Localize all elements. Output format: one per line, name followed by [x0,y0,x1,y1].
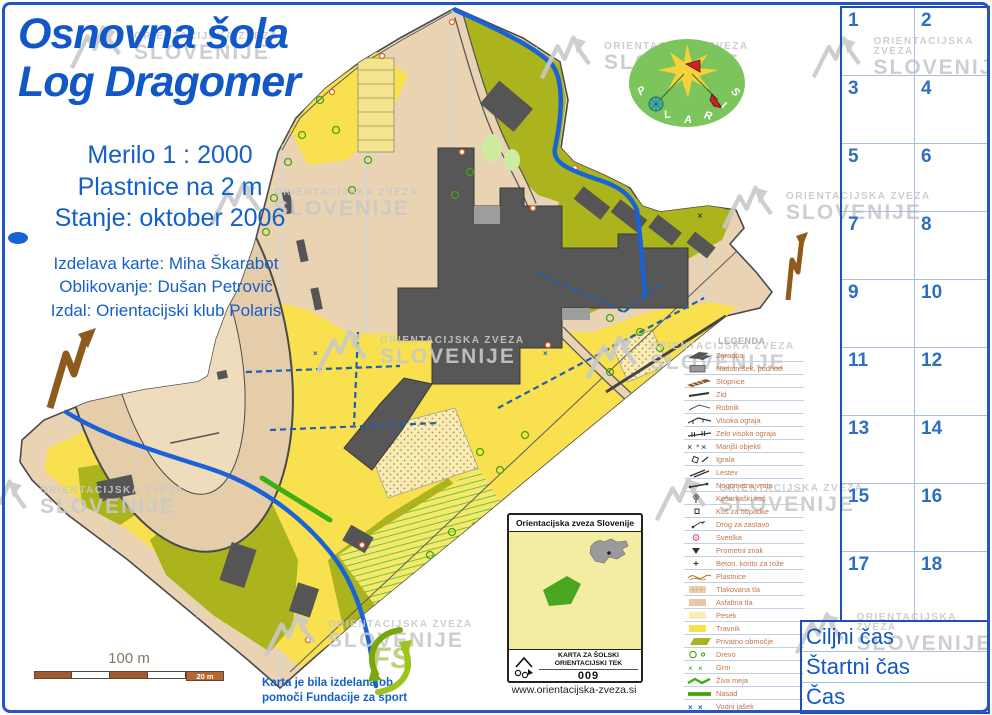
credit-publisher: Izdal: Orientacijski klub Polaris [6,299,326,322]
card-type-line1: KARTA ZA ŠOLSKI [558,652,619,659]
legend-item: Travnik [684,622,804,635]
map-title-line2: Log Dragomer [18,58,300,106]
sports-foundation-logo: FS [354,616,418,706]
hedge-symbol-icon [684,675,716,686]
control-card-cell: 10 [915,280,988,348]
legend-item-label: Zid [716,390,726,399]
legend-item-label: Živa meja [716,676,748,685]
stairs-symbol-icon [684,376,716,387]
control-card-cell: 15 [842,484,915,552]
svg-text:×: × [696,444,700,450]
legend-item-label: Lestev [716,468,738,477]
flagpole-symbol-icon [684,519,716,530]
very-high-fence-symbol-icon [684,428,716,439]
private-symbol-icon [684,636,716,647]
building-symbol-icon [684,350,716,361]
legend-item: Drog za zastavo [684,518,804,531]
contour-interval: Plastnice na 2 m [12,172,328,204]
legend-item-label: Zgradba [716,351,744,360]
legend-item-label: Robnik [716,403,739,412]
legend-item: Lestev [684,466,804,479]
curb-symbol-icon [684,402,716,413]
control-card-cell: 17 [842,552,915,620]
legend-item-label: Nogometna vrata [716,481,773,490]
legend-item: Drevo [684,648,804,661]
legend-item: Zelo visoka ograja [684,427,804,440]
legend-item-label: Drog za zastavo [716,520,769,529]
playground-symbol-icon [684,454,716,465]
control-card-cell: 6 [915,144,988,212]
legend-item: Asfaltna tla [684,596,804,609]
legend-item: Pesek [684,609,804,622]
website-url: www.orientacijska-zveza.si [500,684,648,696]
scale-bar: 100 m 20 m [34,650,224,681]
federation-card: Orientacijska zveza Slovenije KARTA ZA Š… [507,513,643,683]
card-type-line2: ORIENTACIJSKI TEK [555,660,622,667]
control-card-cell: 3 [842,76,915,144]
svg-text:×: × [313,349,318,358]
svg-text:×: × [688,664,693,673]
legend-header: LEGENDA [684,336,804,349]
legend-item-label: Košarkaški koš [716,494,766,503]
plantation-symbol-icon [684,688,716,699]
paved-symbol-icon [684,584,716,595]
legend-item-label: Grm [716,663,730,672]
legend-item: ××Vodni jašek [684,700,804,713]
legend-item: Nadstrešek, podhod [684,362,804,375]
legend-item-label: Stopnice [716,377,745,386]
scale-bar-label: 100 m [34,650,224,667]
map-number: 009 [539,670,638,682]
svg-text:×: × [688,703,693,712]
legend-item-label: Nasad [716,689,737,698]
legend-item: Zid [684,388,804,401]
control-card-cell: 14 [915,416,988,484]
high-fence-symbol-icon [684,415,716,426]
svg-text:×: × [698,664,703,673]
time-record-box: Ciljni časŠtartni časČas [800,620,990,714]
credit-cartography: Izdelava karte: Miha Škarabot [6,252,326,275]
legend-item: Igrala [684,453,804,466]
legend-item: Nasad [684,687,804,700]
legend-item: Koš za odpadke [684,505,804,518]
bin-symbol-icon [684,506,716,517]
credit-design: Oblikovanje: Dušan Petrovič [6,275,326,298]
legend-item: Zgradba [684,349,804,362]
control-card-cell: 16 [915,484,988,552]
scale-segment-label: 20 m [186,671,224,681]
legend-item: Plastnice [684,570,804,583]
legend-item-label: Tlakovana tla [716,585,760,594]
contours-symbol-icon [684,571,716,582]
north-arrow-icon [40,320,100,412]
control-card-grid: 123456789101112131415161718 [840,6,990,622]
legend-item-label: Asfaltna tla [716,598,753,607]
sand-symbol-icon [684,610,716,621]
legend-item-label: Plastnice [716,572,746,581]
svg-text:×: × [701,442,706,452]
map-location-patch [543,576,581,606]
svg-text:×: × [697,211,703,222]
legend-item: Prometni znak [684,544,804,557]
planter-symbol-icon [684,558,716,569]
canopy-symbol-icon [684,363,716,374]
legend-item: Visoka ograja [684,414,804,427]
legend-item-label: Manjši objekti [716,442,761,451]
control-card-cell: 13 [842,416,915,484]
federation-name: Orientacijska zveza Slovenije [509,515,641,532]
lamp-symbol-icon [684,532,716,543]
wall-symbol-icon [684,389,716,400]
legend-item: Nogometna vrata [684,479,804,492]
bush-symbol-icon: ×× [684,662,716,673]
legend-item-label: Nadstrešek, podhod [716,364,782,373]
legend-item-label: Visoka ograja [716,416,761,425]
control-card-cell: 2 [915,8,988,76]
svg-text:×: × [698,703,703,712]
map-scale: Merilo 1 : 2000 [12,140,328,172]
legend-item-label: Prometni znak [716,546,763,555]
legend-item-label: Privatno območje [716,637,773,646]
legend-item-label: Travnik [716,624,740,633]
legend-item-label: Koš za odpadke [716,507,769,516]
polaris-club-logo: P L A R I S [626,36,748,130]
control-card-cell: 4 [915,76,988,144]
svg-text:×: × [670,459,675,468]
slovenia-locator [509,532,641,649]
goal-symbol-icon [684,480,716,491]
legend-item: Beton. korito za rože [684,557,804,570]
control-card-cell: 1 [842,8,915,76]
time-row-label: Ciljni čas [802,622,988,652]
svg-text:×: × [687,442,692,452]
time-row-label: Štartni čas [802,652,988,682]
legend-item-label: Igrala [716,455,735,464]
ladder-symbol-icon [684,467,716,478]
map-status: Stanje: oktober 2006 [12,203,328,235]
control-card-cell: 5 [842,144,915,212]
map-info: Merilo 1 : 2000 Plastnice na 2 m Stanje:… [12,140,328,235]
legend-item: Svetilka [684,531,804,544]
traffic-sign-symbol-icon [684,545,716,556]
legend: LEGENDA ZgradbaNadstrešek, podhodStopnic… [684,336,804,715]
control-card-cell: 18 [915,552,988,620]
map-sheet: × [0,0,992,715]
legend-item-label: Beton. korito za rože [716,559,784,568]
credits: Izdelava karte: Miha Škarabot Oblikovanj… [6,252,326,322]
map-title-line1: Osnovna šola [18,10,300,58]
control-card-cell: 12 [915,348,988,416]
legend-item: Privatno območje [684,635,804,648]
basketball-symbol-icon [684,493,716,504]
control-card-cell: 9 [842,280,915,348]
legend-item-label: Vodni jašek [716,702,754,711]
legend-item: Robnik [684,401,804,414]
tree-symbol-icon [684,649,716,660]
control-card-cell: 7 [842,212,915,280]
legend-item: Tlakovana tla [684,583,804,596]
legend-item-label: Drevo [716,650,736,659]
school-orienteering-logo-icon [512,655,536,679]
time-row-label: Čas [802,683,988,712]
legend-item-label: Zelo visoka ograja [716,429,776,438]
legend-item: Živa meja [684,674,804,687]
legend-item: ××Grm [684,661,804,674]
control-card-cell: 11 [842,348,915,416]
legend-item: Stopnice [684,375,804,388]
small-objects-symbol-icon: ××× [684,441,716,452]
asphalt-symbol-icon [684,597,716,608]
north-arrow-icon [780,224,808,304]
water-shaft-symbol-icon: ×× [684,701,716,712]
legend-item-label: Pesek [716,611,737,620]
legend-item: Košarkaški koš [684,492,804,505]
legend-item-label: Svetilka [716,533,742,542]
legend-item: ×××Manjši objekti [684,440,804,453]
svg-text:×: × [543,349,548,358]
slovenia-map-silhouette [590,539,628,563]
map-title: Osnovna šola Log Dragomer [18,10,300,106]
grass-symbol-icon [684,623,716,634]
control-card-cell: 8 [915,212,988,280]
svg-text:A: A [683,114,692,126]
